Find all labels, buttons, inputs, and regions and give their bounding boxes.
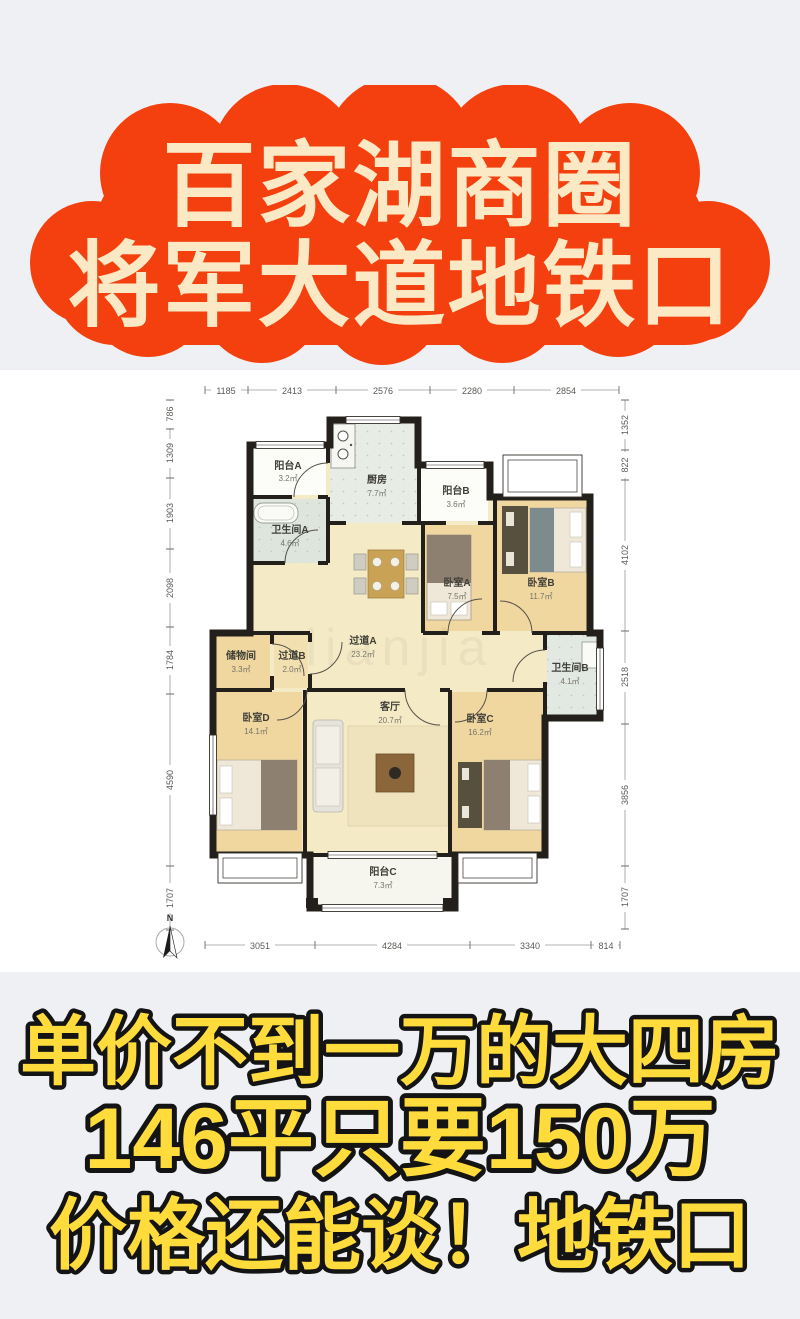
svg-text:3340: 3340 bbox=[520, 941, 540, 951]
svg-text:3856: 3856 bbox=[620, 785, 630, 805]
svg-text:1352: 1352 bbox=[620, 415, 630, 435]
room-label-hall-b: 过道B 2.0㎡ bbox=[278, 649, 305, 674]
svg-text:14.1㎡: 14.1㎡ bbox=[244, 727, 268, 736]
bay-window-b bbox=[503, 455, 582, 497]
bed-b bbox=[502, 506, 586, 574]
svg-text:2.0㎡: 2.0㎡ bbox=[282, 665, 301, 674]
svg-text:2854: 2854 bbox=[556, 386, 576, 396]
svg-text:卫生间B: 卫生间B bbox=[551, 661, 588, 674]
bay-window-d bbox=[218, 853, 302, 883]
room-label-balcony-a: 阳台A 3.2㎡ bbox=[274, 459, 301, 483]
floorplan-graphic: lianjia bbox=[150, 370, 670, 970]
svg-text:卧室D: 卧室D bbox=[242, 711, 269, 724]
footer-graphic: 单价不到一万的大四房 146平只要150万 价格还能谈！地铁口 bbox=[0, 980, 800, 1319]
svg-text:1185: 1185 bbox=[216, 386, 235, 396]
svg-text:3.3㎡: 3.3㎡ bbox=[231, 665, 250, 674]
svg-text:阳台A: 阳台A bbox=[274, 459, 301, 472]
svg-text:3051: 3051 bbox=[250, 941, 270, 951]
svg-text:阳台C: 阳台C bbox=[369, 865, 396, 878]
dimension-left: 786 1309 1903 2098 1784 4590 1707 bbox=[164, 400, 176, 930]
room-label-balcony-b: 阳台B 3.6㎡ bbox=[442, 484, 469, 509]
svg-text:814: 814 bbox=[598, 941, 613, 951]
svg-text:1309: 1309 bbox=[165, 443, 175, 463]
room-label-kitchen: 厨房 7.7㎡ bbox=[367, 473, 387, 498]
svg-text:4590: 4590 bbox=[165, 770, 175, 790]
svg-text:23.2㎡: 23.2㎡ bbox=[351, 650, 375, 659]
compass-needle-dark bbox=[163, 926, 170, 958]
svg-text:厨房: 厨房 bbox=[367, 473, 387, 486]
banner-line2: 将军大道地铁口 bbox=[68, 234, 733, 338]
svg-text:7.7㎡: 7.7㎡ bbox=[367, 489, 386, 498]
svg-text:20.7㎡: 20.7㎡ bbox=[378, 716, 402, 725]
compass: N bbox=[156, 913, 184, 958]
floorplan-panel: lianjia bbox=[0, 370, 800, 972]
svg-text:4.1㎡: 4.1㎡ bbox=[560, 677, 579, 686]
banner-line1: 百家湖商圈 bbox=[163, 134, 638, 238]
stove bbox=[331, 424, 355, 468]
cloud-banner-graphic: 百家湖商圈 将军大道地铁口 bbox=[0, 85, 800, 375]
svg-text:3.6㎡: 3.6㎡ bbox=[446, 500, 465, 509]
svg-text:16.2㎡: 16.2㎡ bbox=[468, 728, 492, 737]
svg-text:过道B: 过道B bbox=[278, 649, 305, 662]
footer-line1: 单价不到一万的大四房 bbox=[20, 1010, 780, 1095]
room-label-living: 客厅 20.7㎡ bbox=[378, 700, 402, 725]
svg-text:7.3㎡: 7.3㎡ bbox=[373, 881, 392, 890]
svg-text:2280: 2280 bbox=[462, 386, 482, 396]
footer-line2: 146平只要150万 bbox=[85, 1091, 716, 1187]
svg-text:11.7㎡: 11.7㎡ bbox=[530, 592, 553, 601]
bed-d bbox=[217, 760, 297, 830]
bed-c bbox=[458, 760, 544, 830]
svg-text:1707: 1707 bbox=[165, 888, 175, 908]
compass-needle-light bbox=[170, 926, 177, 958]
svg-text:4284: 4284 bbox=[382, 941, 402, 951]
svg-text:客厅: 客厅 bbox=[379, 700, 400, 713]
svg-text:822: 822 bbox=[620, 457, 630, 472]
compass-north-label: N bbox=[167, 913, 174, 923]
promo-footer: 单价不到一万的大四房 146平只要150万 价格还能谈！地铁口 bbox=[0, 980, 800, 1319]
room-label-bedroom-a: 卧室A 7.5㎡ bbox=[443, 576, 470, 601]
svg-text:阳台B: 阳台B bbox=[442, 484, 469, 497]
dimension-right: 1352 822 4102 2518 3856 1707 bbox=[619, 400, 631, 929]
svg-text:1784: 1784 bbox=[165, 650, 175, 670]
svg-text:2518: 2518 bbox=[620, 667, 630, 687]
svg-text:卧室B: 卧室B bbox=[527, 576, 554, 589]
watermark: lianjia bbox=[306, 619, 495, 677]
svg-text:786: 786 bbox=[165, 406, 175, 421]
svg-text:卧室C: 卧室C bbox=[466, 712, 493, 725]
dimension-top: 1185 2413 2576 2280 2854 bbox=[205, 384, 619, 396]
room-label-bedroom-b: 卧室B 11.7㎡ bbox=[527, 576, 554, 601]
footer-line3: 价格还能谈！地铁口 bbox=[49, 1191, 751, 1279]
svg-text:2576: 2576 bbox=[373, 386, 393, 396]
room-label-balcony-c: 阳台C 7.3㎡ bbox=[369, 865, 396, 890]
svg-text:过道A: 过道A bbox=[349, 634, 376, 647]
bathtub bbox=[254, 503, 298, 523]
room-label-hall-a: 过道A 23.2㎡ bbox=[349, 634, 376, 659]
svg-text:1707: 1707 bbox=[620, 887, 630, 907]
bay-window-c bbox=[458, 853, 537, 883]
svg-text:卧室A: 卧室A bbox=[443, 576, 470, 589]
svg-text:1903: 1903 bbox=[165, 503, 175, 523]
svg-text:储物间: 储物间 bbox=[225, 649, 256, 662]
sofa bbox=[313, 720, 448, 826]
promo-banner: 百家湖商圈 将军大道地铁口 bbox=[0, 85, 800, 375]
dimension-bottom: 3051 4284 3340 814 bbox=[205, 939, 620, 951]
svg-text:3.2㎡: 3.2㎡ bbox=[278, 474, 297, 483]
svg-text:2413: 2413 bbox=[282, 386, 302, 396]
room-label-bedroom-d: 卧室D 14.1㎡ bbox=[242, 711, 269, 736]
room-label-bedroom-c: 卧室C 16.2㎡ bbox=[466, 712, 493, 737]
svg-text:4102: 4102 bbox=[620, 545, 630, 565]
svg-text:7.5㎡: 7.5㎡ bbox=[447, 592, 466, 601]
svg-text:卫生间A: 卫生间A bbox=[271, 523, 308, 536]
svg-text:2098: 2098 bbox=[165, 578, 175, 598]
svg-text:4.6㎡: 4.6㎡ bbox=[280, 539, 299, 548]
